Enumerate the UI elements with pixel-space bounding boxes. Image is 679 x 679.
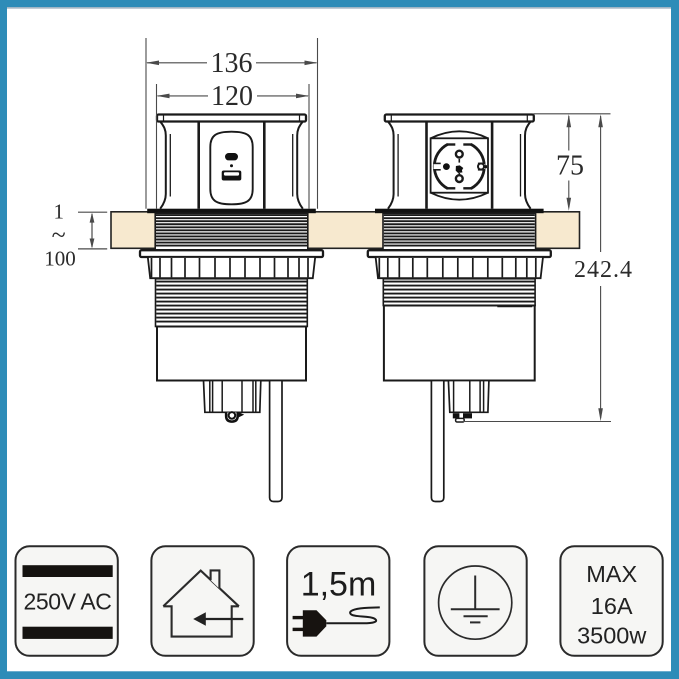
svg-text:16A: 16A	[591, 593, 633, 619]
svg-text:120: 120	[211, 81, 253, 112]
svg-text:242.4: 242.4	[574, 257, 633, 283]
svg-text:75: 75	[556, 151, 584, 182]
svg-text:MAX: MAX	[586, 561, 637, 587]
svg-text:136: 136	[211, 48, 253, 79]
svg-text:1,5m: 1,5m	[301, 565, 377, 603]
svg-text:100: 100	[44, 247, 76, 271]
svg-text:250V AC: 250V AC	[24, 589, 112, 615]
svg-text:~: ~	[52, 221, 66, 250]
svg-text:3500w: 3500w	[577, 623, 647, 649]
